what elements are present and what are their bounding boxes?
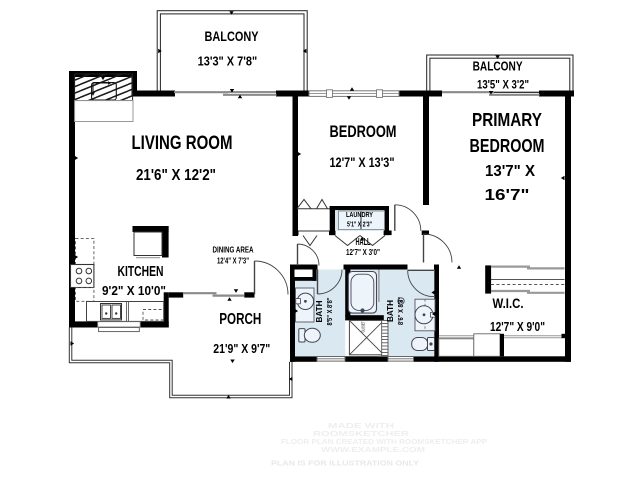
svg-text:12'7" X 13'3": 12'7" X 13'3" xyxy=(330,154,395,170)
svg-text:12'7" X 3'0": 12'7" X 3'0" xyxy=(346,248,380,257)
svg-text:BATH: BATH xyxy=(385,300,395,322)
svg-text:BEDROOM: BEDROOM xyxy=(330,122,397,141)
svg-text:9'2" X 10'0": 9'2" X 10'0" xyxy=(102,284,166,298)
svg-text:12'7" X 9'0": 12'7" X 9'0" xyxy=(490,319,545,334)
svg-text:12'4" X 7'3": 12'4" X 7'3" xyxy=(217,257,249,266)
svg-text:PLAN IS FOR ILLUSTRATION ONLY: PLAN IS FOR ILLUSTRATION ONLY xyxy=(271,461,419,468)
svg-text:WWW.EXAMPLE.COM: WWW.EXAMPLE.COM xyxy=(321,445,425,454)
svg-text:21'6" X 12'2": 21'6" X 12'2" xyxy=(136,167,216,184)
svg-text:BALCONY: BALCONY xyxy=(473,60,524,74)
svg-text:PRIMARY: PRIMARY xyxy=(472,110,542,130)
svg-text:DINING AREA: DINING AREA xyxy=(213,245,254,255)
svg-text:8'6" X 8'8": 8'6" X 8'8" xyxy=(396,297,405,325)
svg-text:13'3" X 7'8": 13'3" X 7'8" xyxy=(198,54,258,69)
svg-text:CLOSET: CLOSET xyxy=(361,321,366,332)
svg-text:KITCHEN: KITCHEN xyxy=(118,264,164,280)
svg-text:BEDROOM: BEDROOM xyxy=(470,136,545,156)
svg-text:LIVING ROOM: LIVING ROOM xyxy=(132,133,233,154)
svg-text:BATH: BATH xyxy=(314,301,324,323)
svg-text:BALCONY: BALCONY xyxy=(205,29,259,44)
svg-text:13'5" X 3'2": 13'5" X 3'2" xyxy=(477,80,529,92)
svg-text:LAUNDRY: LAUNDRY xyxy=(346,210,373,219)
svg-text:PORCH: PORCH xyxy=(219,311,261,328)
svg-text:16'7": 16'7" xyxy=(485,187,530,204)
svg-text:8'5" X 8'8": 8'5" X 8'8" xyxy=(325,297,334,325)
svg-text:W.I.C.: W.I.C. xyxy=(493,295,524,311)
svg-text:5'1" X 2'3": 5'1" X 2'3" xyxy=(347,222,372,229)
svg-text:21'9" X 9'7": 21'9" X 9'7" xyxy=(213,341,270,356)
svg-text:13'7" X: 13'7" X xyxy=(485,163,535,180)
